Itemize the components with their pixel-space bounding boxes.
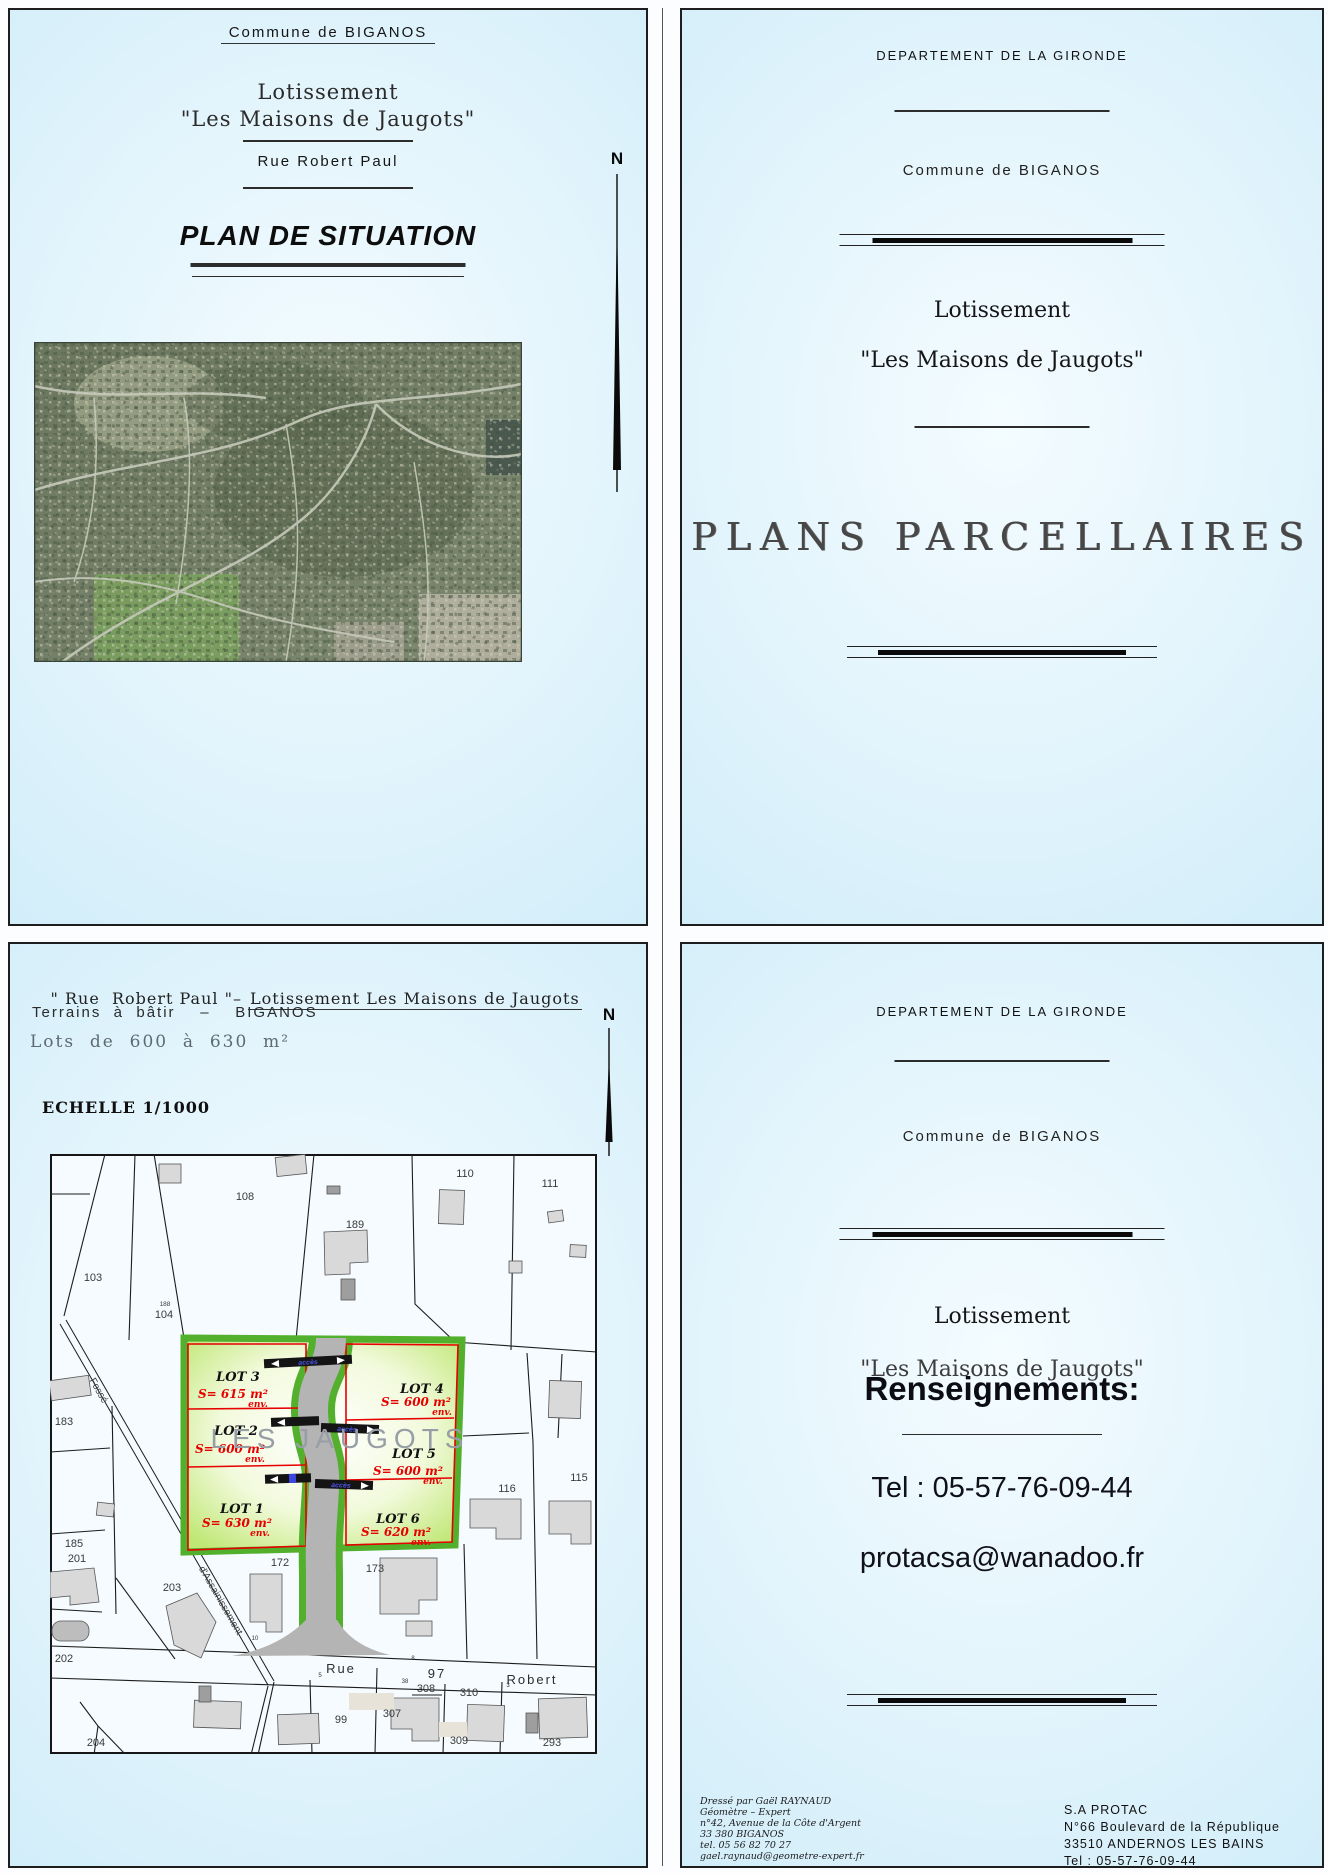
company-line: N°66 Boulevard de la République (1064, 1819, 1280, 1836)
svg-text:110: 110 (456, 1168, 474, 1180)
surveyor-line: Géomètre – Expert (700, 1807, 864, 1818)
svg-text:38: 38 (402, 1679, 409, 1685)
svg-text:116: 116 (498, 1483, 516, 1495)
surveyor-line: 33 380 BIGANOS (700, 1829, 864, 1840)
svg-text:203: 203 (163, 1582, 181, 1594)
svg-text:188: 188 (160, 1301, 171, 1308)
access-label: accès (298, 1359, 318, 1367)
company-line: 33510 ANDERNOS LES BAINS (1064, 1836, 1280, 1853)
lotissement-label: Lotissement (682, 298, 1322, 323)
divider-rule (895, 110, 1110, 112)
svg-text:10: 10 (252, 1636, 259, 1642)
lot-4-env: env. (432, 1408, 452, 1418)
north-letter: N (603, 1005, 615, 1024)
detail-lots-line: Lots de 600 à 630 m² (30, 1032, 290, 1052)
svg-text:104: 104 (155, 1309, 173, 1321)
double-rule (847, 646, 1157, 659)
svg-text:111: 111 (542, 1178, 559, 1190)
surveyor-line: n°42, Avenue de la Côte d'Argent (700, 1818, 864, 1829)
lotissement-label: Lotissement (682, 1304, 1322, 1329)
divider-rule (902, 1434, 1102, 1435)
panel-plan-parcellaire-detail: " Rue Robert Paul "– Lotissement Les Mai… (8, 942, 648, 1868)
svg-text:308: 308 (417, 1683, 435, 1695)
departement-label: DEPARTEMENT DE LA GIRONDE (682, 48, 1322, 63)
svg-text:310: 310 (460, 1687, 478, 1699)
svg-text:201: 201 (68, 1553, 86, 1565)
lot-2-env: env. (245, 1455, 265, 1465)
commune-label: Commune de BIGANOS (682, 1128, 1322, 1145)
lot-3-env: env. (248, 1400, 268, 1410)
lotissement-name: "Les Maisons de Jaugots" (682, 348, 1322, 373)
lotissement-label: Lotissement (10, 80, 646, 104)
street-robert: Robert (506, 1672, 557, 1687)
divider-rule (243, 187, 413, 189)
svg-text:183: 183 (55, 1416, 73, 1428)
lot-3-area: S= 615 m² (198, 1387, 268, 1401)
svg-text:108: 108 (236, 1191, 254, 1203)
company-line: Tel : 05-57-76-09-44 (1064, 1853, 1280, 1870)
svg-text:185: 185 (65, 1538, 83, 1550)
svg-text:103: 103 (84, 1272, 102, 1284)
title-underline-thick (191, 263, 466, 267)
cadastral-plan: accès accès accès (50, 1154, 597, 1754)
lot-1-area: S= 630 m² (202, 1516, 272, 1530)
svg-text:189: 189 (346, 1219, 364, 1231)
email-address: protacsa@wanadoo.fr (682, 1542, 1322, 1575)
svg-text:99: 99 (335, 1714, 347, 1726)
svg-text:204: 204 (87, 1737, 105, 1749)
aerial-photo (34, 342, 522, 662)
north-arrow: N (604, 140, 630, 500)
double-rule (840, 1228, 1165, 1241)
svg-text:173: 173 (366, 1563, 384, 1575)
panel-renseignements: DEPARTEMENT DE LA GIRONDE Commune de BIG… (680, 942, 1324, 1868)
panel-plans-parcellaires: DEPARTEMENT DE LA GIRONDE Commune de BIG… (680, 8, 1324, 926)
road-name-label: LES JAUGOTS (211, 1423, 470, 1454)
svg-text:307: 307 (383, 1708, 401, 1720)
commune-label: Commune de BIGANOS (682, 162, 1322, 179)
north-arrow: N (596, 998, 622, 1162)
svg-text:115: 115 (570, 1472, 588, 1484)
title-underline-thin (192, 276, 464, 277)
svg-text:202: 202 (55, 1653, 73, 1665)
lot-1-name: LOT 1 (219, 1502, 264, 1517)
phone-number: Tel : 05-57-76-09-44 (682, 1472, 1322, 1505)
departement-label: DEPARTEMENT DE LA GIRONDE (682, 1004, 1322, 1019)
surveyor-line: tel. 05 56 82 70 27 (700, 1840, 864, 1851)
lot-5-env: env. (423, 1477, 443, 1487)
lot-6-area: S= 620 m² (361, 1525, 431, 1539)
document-page: Commune de BIGANOS Lotissement "Les Mais… (0, 0, 1328, 1873)
divider-rule (895, 1060, 1110, 1062)
lot-5-area: S= 600 m² (373, 1464, 443, 1478)
north-letter: N (611, 149, 623, 168)
lot-1-env: env. (250, 1529, 270, 1539)
north-arrowhead (605, 1056, 612, 1142)
street-rue: Rue (326, 1661, 356, 1676)
fold-line-vertical (662, 8, 663, 1866)
lot-6-env: env. (411, 1538, 431, 1548)
panel-plan-situation: Commune de BIGANOS Lotissement "Les Mais… (8, 8, 648, 926)
surveyor-line: gael.raynaud@geometre-expert.fr (700, 1851, 864, 1862)
company-line: S.A PROTAC (1064, 1802, 1280, 1819)
svg-text:172: 172 (271, 1557, 289, 1569)
svg-text:309: 309 (450, 1735, 468, 1747)
lot-4-area: S= 600 m² (381, 1395, 451, 1409)
commune-heading: Commune de BIGANOS (10, 24, 646, 41)
svg-text:293: 293 (543, 1737, 561, 1749)
renseignements-heading: Renseignements: (682, 1370, 1322, 1408)
plan-situation-title: PLAN DE SITUATION (10, 220, 646, 252)
lot-3-name: LOT 3 (215, 1370, 260, 1385)
surveyor-line: Dressé par Gaël RAYNAUD (700, 1796, 864, 1807)
north-arrowhead (613, 215, 621, 470)
commune-label: Commune de BIGANOS (221, 24, 436, 44)
plans-parcellaires-title: PLANS PARCELLAIRES (682, 515, 1322, 559)
double-rule (840, 234, 1165, 247)
double-rule (847, 1694, 1157, 1707)
divider-rule (243, 140, 413, 142)
lotissement-name: "Les Maisons de Jaugots" (10, 107, 646, 131)
street-number: 97 (428, 1666, 446, 1681)
street-label: Rue Robert Paul (10, 153, 646, 170)
divider-rule (915, 426, 1090, 428)
access-label: accès (331, 1482, 351, 1490)
company-block: S.A PROTAC N°66 Boulevard de la Républiq… (1064, 1802, 1280, 1870)
surveyor-block: Dressé par Gaël RAYNAUD Géomètre – Exper… (700, 1796, 864, 1862)
scale-label: ECHELLE 1/1000 (42, 1098, 210, 1117)
detail-subtitle: Terrains à bâtir – BIGANOS (32, 1004, 318, 1021)
